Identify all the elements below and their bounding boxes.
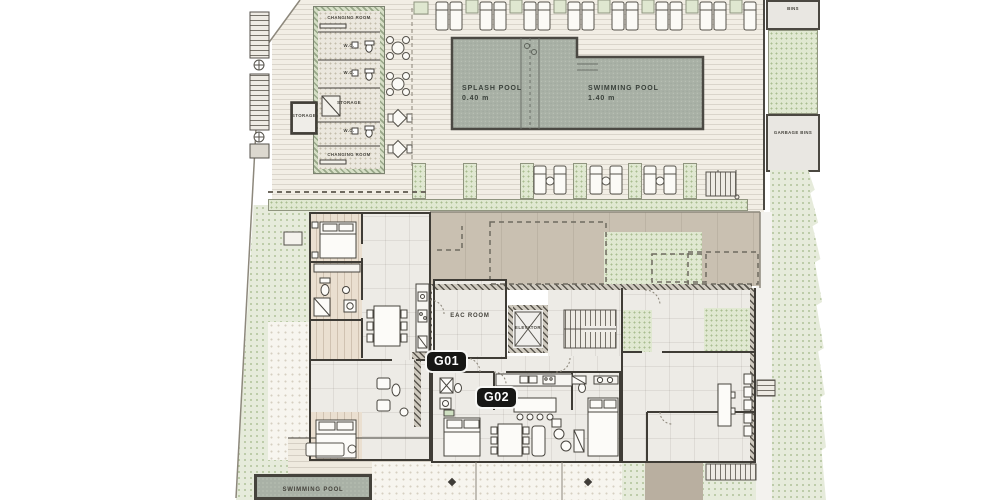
wc-label: W.C. (318, 128, 380, 134)
outdoor-stairs (250, 12, 269, 158)
swimming-pool-label: SWIMMING POOL 1.40 m (588, 84, 659, 104)
unit-badge-g02[interactable]: G02 (477, 388, 516, 407)
unit-badge-g01[interactable]: G01 (427, 352, 466, 371)
cafe-tables (387, 8, 413, 170)
wc-label: W.C. (318, 43, 380, 49)
changing-room-top-label: CHANGING ROOM (318, 15, 380, 21)
storage-annex-label: STORAGE (291, 113, 317, 119)
g01-furniture (312, 222, 429, 458)
g01-bathroom (314, 264, 360, 316)
elevator-label: ELEVATOR (513, 325, 543, 331)
splash-pool-label: SPLASH POOL 0.40 m (462, 84, 522, 104)
private-pool-label: SWIMMING POOL (254, 486, 372, 495)
top-sun-loungers (414, 0, 756, 30)
g02-furniture (444, 374, 618, 456)
garbage-bins-label: GARBAGE BINS (770, 130, 816, 136)
wc-label: W.C. (318, 70, 380, 76)
floor-plan: SPLASH POOL 0.40 m SWIMMING POOL 1.40 m … (0, 0, 1000, 500)
bins-top-label: BINS (766, 6, 820, 12)
eac-room-label: EAC ROOM (434, 312, 506, 321)
plan-linework (0, 0, 1000, 500)
changing-room-bottom-label: CHANGING ROOM (318, 152, 380, 158)
right-wing-furniture (718, 374, 752, 436)
storage-label: STORAGE (318, 100, 380, 106)
